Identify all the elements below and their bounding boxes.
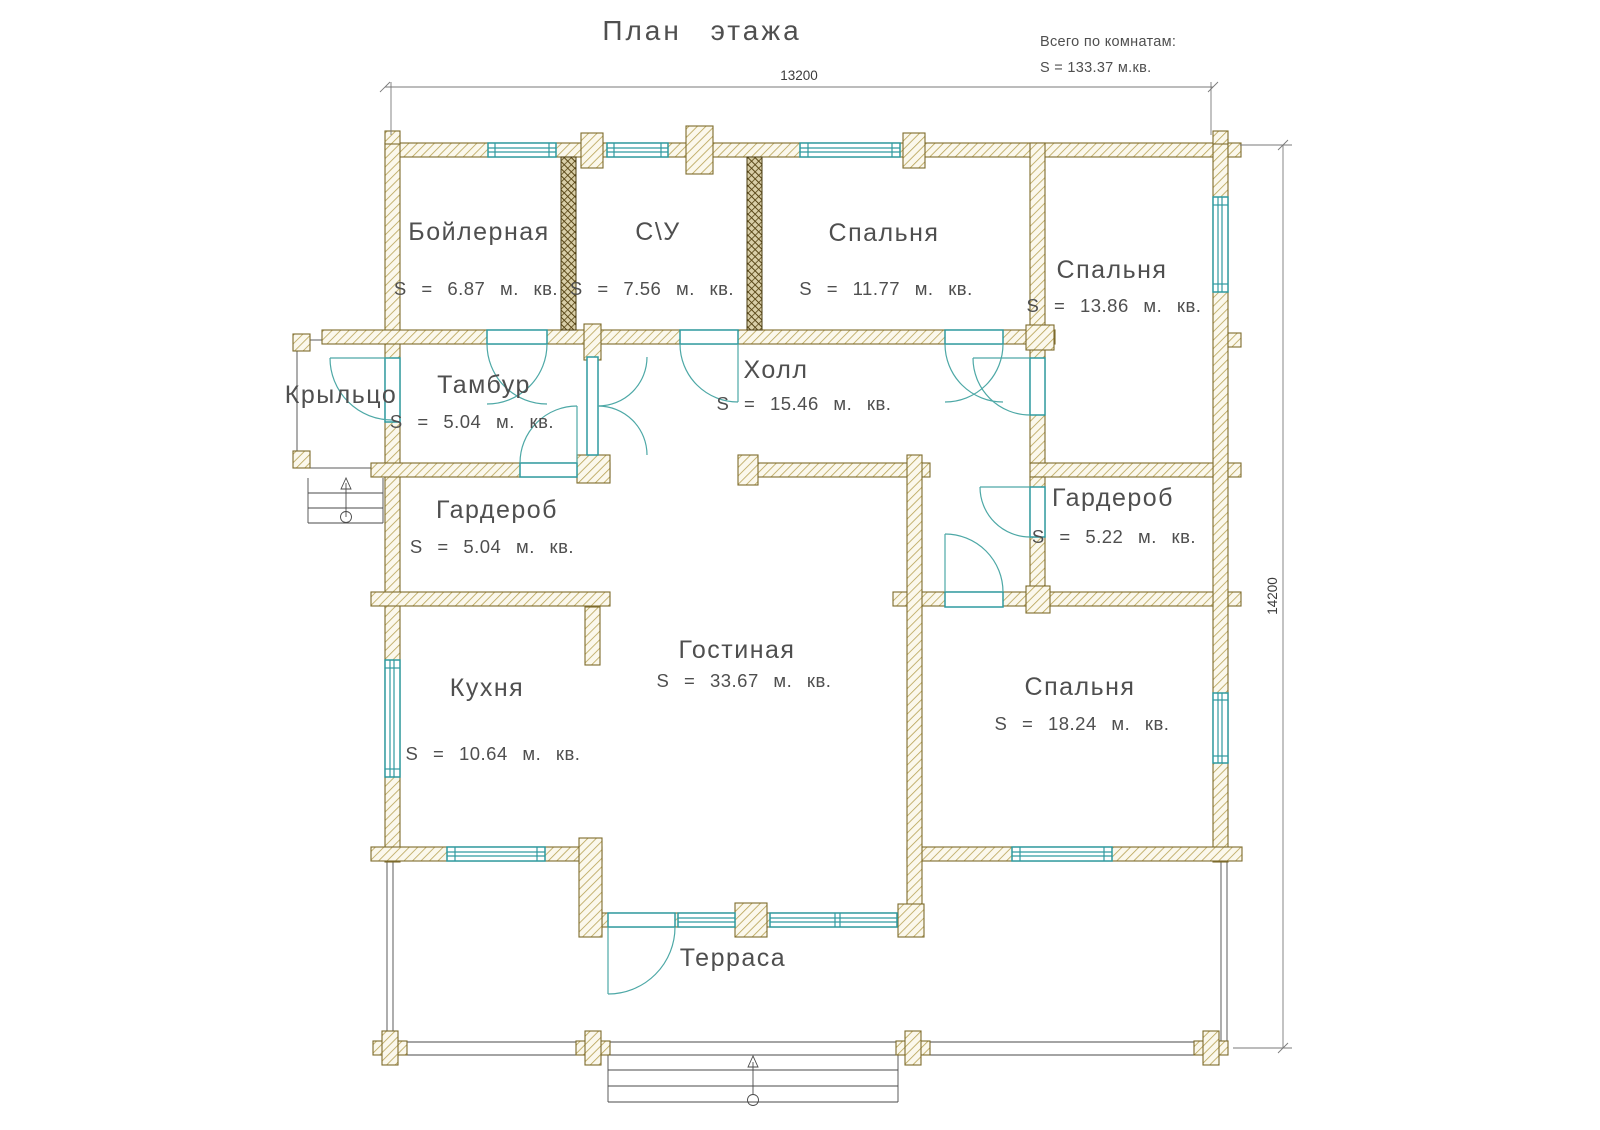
dimension-width: 13200 [780,68,818,83]
terrace-post [896,1031,930,1065]
room-label-wardrobe-left: Гардероб [436,496,558,524]
room-area-wardrobe-left: S = 5.04 м. кв. [410,536,574,557]
door-terrace [608,913,675,994]
floor-plan-canvas: 13200 14200 План этажа Всего по комнатам… [0,0,1600,1130]
wall-kitchen-stub [585,607,600,665]
porch-corner-post [293,334,310,351]
room-label-bedroom-bottom: Спальня [1025,673,1136,701]
room-label-boiler: Бойлерная [408,218,549,246]
terrace-stairs [608,1055,898,1106]
room-area-hall: S = 15.46 м. кв. [717,393,892,414]
room-label-wardrobe-right: Гардероб [1052,484,1174,512]
window [488,143,556,157]
summary-caption: Всего по комнатам: [1040,34,1176,50]
room-area-boiler: S = 6.87 м. кв. [394,278,558,299]
room-label-tambour: Тамбур [437,371,531,399]
wall-wardrobeL-bottom [371,592,610,606]
wall-bedroomBR-top [893,592,1213,606]
window [770,913,897,927]
terrace-post [373,1031,407,1065]
room-area-tambour: S = 5.04 м. кв. [390,411,554,432]
window [1213,197,1228,292]
terrace-outline [387,862,1227,1055]
dimensions-layer: 13200 14200 [380,68,1292,1053]
window [678,913,735,927]
dimension-height: 14200 [1265,577,1280,615]
room-label-living: Гостиная [679,636,796,664]
door-bedroomBR [945,534,1003,607]
labels-layer: План этажа Всего по комнатам: S = 133.37… [285,15,1202,972]
porch-stairs [308,478,383,523]
partition-wc-bedroom [747,157,762,330]
wall-wardrobeR-top [1030,463,1213,477]
room-area-bedroom-top: S = 11.77 м. кв. [799,278,973,299]
door-wc [680,330,738,402]
room-area-bedroom-bottom: S = 18.24 м. кв. [995,713,1170,734]
window [385,660,400,777]
room-label-hall: Холл [744,356,809,384]
room-label-terrace: Терраса [680,944,786,972]
room-area-bedroom-right: S = 13.86 м. кв. [1027,295,1202,316]
summary-total-area: S = 133.37 м.кв. [1040,60,1151,76]
room-label-kitchen: Кухня [450,674,524,702]
window [800,143,900,157]
room-label-bedroom-top: Спальня [829,219,940,247]
floor-plan-svg: 13200 14200 План этажа Всего по комнатам… [0,0,1600,1130]
wall-hall-bottom [741,463,930,477]
door-tambour-hall [587,357,647,455]
partition-boiler-wc [561,157,576,330]
window [1012,847,1112,861]
porch-corner-post [293,451,310,468]
wall-living-corridor [907,455,922,936]
terrace-post [1194,1031,1228,1065]
window [1213,693,1228,763]
window [607,143,668,157]
room-label-porch: Крыльцо [285,381,398,409]
window [447,847,545,861]
room-area-wc: S = 7.56 м. кв. [570,278,734,299]
terrace-post [576,1031,610,1065]
room-area-wardrobe-right: S = 5.22 м. кв. [1032,526,1196,547]
room-label-bedroom-right: Спальня [1057,256,1168,284]
room-label-wc: С\У [635,218,680,246]
page-title: План этажа [602,15,801,46]
room-area-living: S = 33.67 м. кв. [657,670,832,691]
room-area-kitchen: S = 10.64 м. кв. [406,743,581,764]
